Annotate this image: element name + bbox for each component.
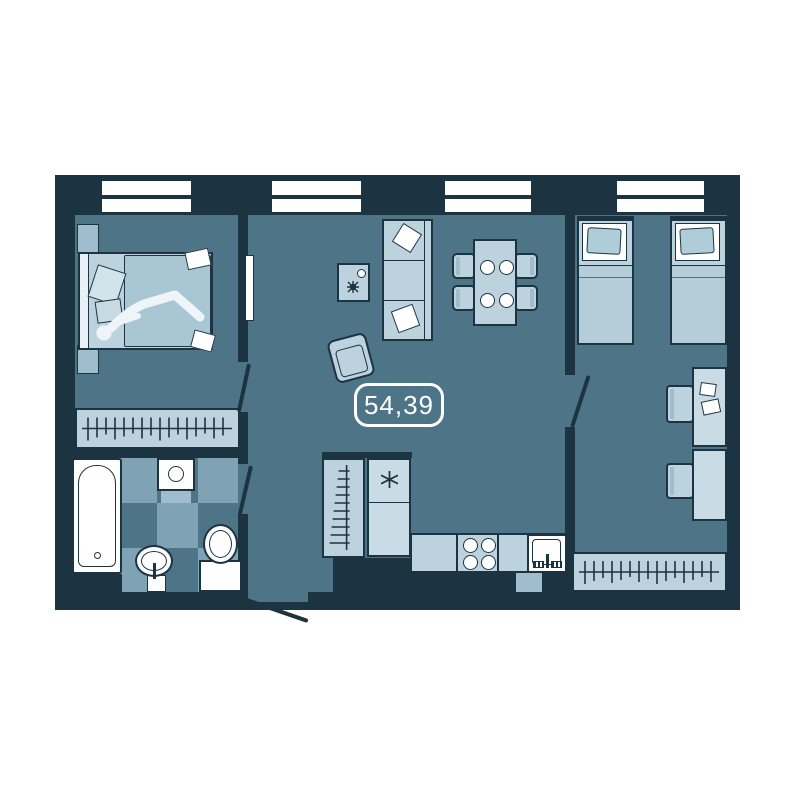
wardrobe [572,552,727,592]
window [272,181,361,212]
desk-chair [666,463,694,499]
fridge-divider [369,502,409,503]
stove-burner [481,555,496,570]
bed-headboard [672,218,725,221]
single-bed [670,216,727,345]
bathtub [72,458,122,574]
faucet-icon [546,554,549,568]
floor-plan: 54,39 [0,0,800,800]
snowflake-icon [381,471,398,488]
window-pane [102,181,191,195]
wall-below-kitchen-wardrobe [333,558,412,592]
chair-back [670,389,674,419]
window [445,181,531,212]
papers [699,382,717,397]
chair-back [456,289,460,307]
hanger-rail-icon [324,460,363,556]
dining-chair [514,285,538,311]
nightstand [77,224,99,253]
desk-chair [666,385,694,423]
chair-back [456,257,460,275]
wall-above-bathroom [75,449,238,458]
chair-back [670,467,674,495]
dining-table [473,239,517,326]
wall-below-bathtub [72,574,122,592]
hanger-rail-icon [77,410,238,447]
sofa-pillow [391,304,420,333]
drainer-icon [551,561,562,568]
plate [480,293,495,308]
counter-stub [516,573,542,592]
bathroom-sink [135,545,173,577]
window-sill [272,199,361,212]
stove-burner [463,538,478,553]
coffee-table [337,263,370,302]
bed-blanket [579,265,632,343]
kitchen-wardrobe [322,458,365,558]
area-label: 54,39 [354,383,444,427]
person-silhouette [80,254,215,352]
kitchen-sink [527,534,567,573]
double-bed [78,252,213,350]
sofa-pillow [392,223,422,253]
counter-divider [456,533,458,573]
washer-door-icon [168,466,184,482]
pillow-frame [675,223,720,261]
window [102,181,191,212]
chair-back [530,289,534,307]
window [617,181,704,212]
plate [499,260,514,275]
pillow [679,227,714,255]
sofa [382,219,433,341]
drainer-icon [533,561,544,568]
window-sill [102,199,191,212]
window-sill [617,199,704,212]
window-pane [272,181,361,195]
chair-back [530,257,534,275]
stove-burner [481,538,496,553]
counter-divider [497,533,499,573]
decor-plant-icon [343,277,363,297]
plate [499,293,514,308]
armchair-seat [335,344,369,378]
sliding-door-leaf [245,255,254,321]
desk [692,367,727,447]
bed-blanket [672,265,725,343]
washer-base [161,491,191,503]
wall-below-counter [412,573,565,592]
plate [480,260,495,275]
sofa-cushion-seam [384,300,424,301]
bathtub-drain [94,552,101,559]
blanket-fold [579,277,632,278]
window-pane [445,181,531,195]
bed-headboard [579,218,632,221]
sink-faucet-icon [153,563,156,579]
stove-burner [463,555,478,570]
window-pane [617,181,704,195]
sofa-cushion-seam [384,260,424,261]
desk [692,449,727,521]
wardrobe [75,408,240,449]
pillow-frame [582,223,627,261]
toilet [203,524,238,564]
toilet-bowl [209,530,232,558]
dining-chair [514,253,538,279]
washing-machine [157,458,195,491]
toilet-tank [199,560,242,592]
blanket-fold [672,277,725,278]
fridge [367,458,411,557]
window-sill [445,199,531,212]
single-bed [577,216,634,345]
sofa-backrest [424,221,425,339]
pillow [586,227,621,255]
hanger-rail-icon [574,554,725,590]
papers [701,398,722,415]
sink-pedestal [147,575,166,592]
